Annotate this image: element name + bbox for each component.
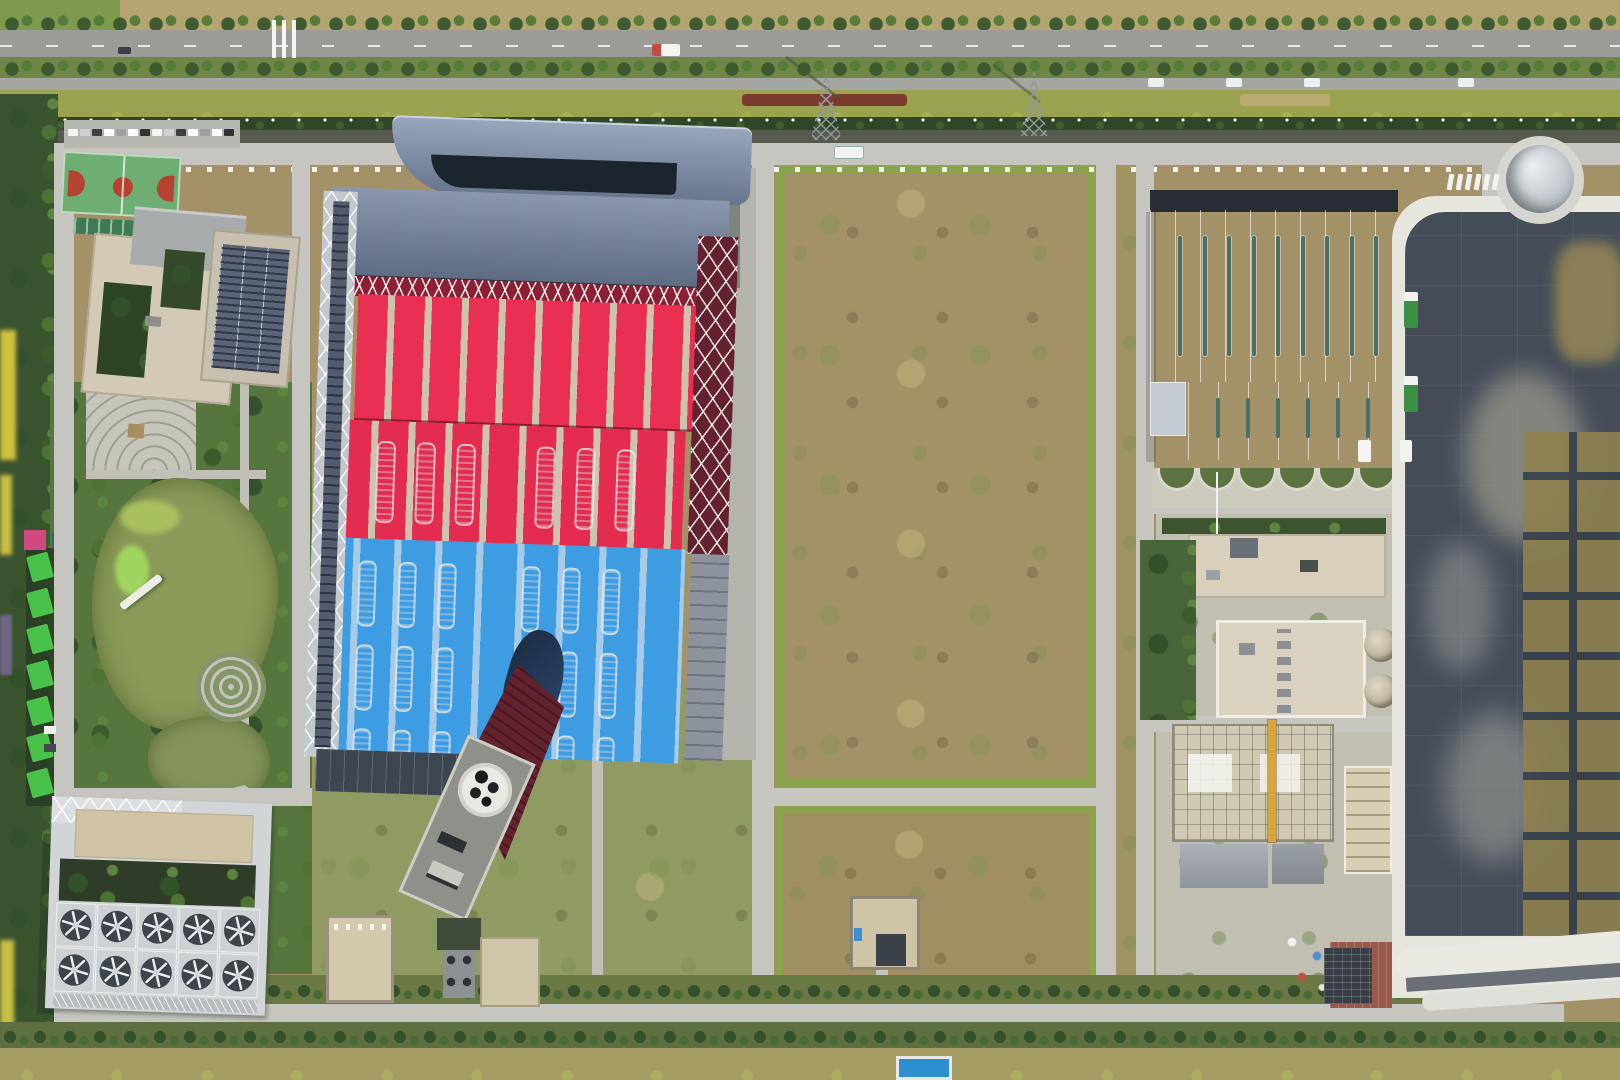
- cooling-fan-cell: [94, 949, 136, 994]
- cooling-fan-grid: [53, 902, 260, 999]
- parked-car-left-road-1: [44, 726, 56, 734]
- frame-white-panel-2: [1260, 754, 1300, 792]
- roof-unit-small-2: [1206, 570, 1220, 580]
- annex-skylights: [1216, 396, 1366, 442]
- pump-house-roof-dots: [334, 924, 386, 930]
- truck-on-internal-road: [834, 146, 864, 159]
- blue-roof-vent: [434, 647, 454, 714]
- pink-kiosk: [24, 530, 46, 550]
- dry-grass-bottom: [0, 1048, 1620, 1080]
- perimeter-hedge: [0, 117, 1620, 131]
- warehouse-skylight: [1374, 236, 1378, 356]
- planter-arch: [1240, 468, 1274, 488]
- parked-van: [1304, 78, 1320, 87]
- roof-unit-dark: [1230, 538, 1258, 558]
- blue-roof-vent: [561, 567, 581, 634]
- parked-car: [68, 129, 78, 136]
- cooling-tower-bank: [45, 796, 272, 1016]
- yellow-flower-field-1: [0, 330, 16, 460]
- basin-dark-surface: [1405, 212, 1620, 936]
- green-shelter-panel: [26, 588, 54, 619]
- yellow-flower-field-2: [0, 475, 12, 555]
- fan-blades-icon: [55, 948, 94, 991]
- red-roof-vent: [374, 441, 396, 524]
- gray-shed-roof-1: [1180, 844, 1268, 888]
- fan-blades-icon: [56, 903, 95, 946]
- office-solar-array: [211, 244, 290, 373]
- dark-solar-building: [1324, 948, 1372, 1004]
- road-cross-field: [752, 788, 1116, 806]
- planter-arches-row: [1152, 468, 1398, 508]
- warehouse-skylight: [1325, 236, 1329, 356]
- fan-blades-icon: [218, 954, 257, 997]
- office-roof-unit: [145, 316, 162, 327]
- warehouse-north-edge: [1150, 190, 1398, 212]
- stack-roof-equipment-2: [427, 860, 464, 887]
- aerial-photo: [0, 0, 1620, 1080]
- truck-on-highway: [652, 44, 680, 56]
- cooling-inner-vegetation: [59, 859, 256, 908]
- parked-car: [224, 129, 234, 136]
- plaza-pavilion: [127, 423, 144, 438]
- process-building-north: [1188, 534, 1386, 598]
- field-utility-blue-bin: [854, 928, 862, 941]
- highway-lane-dashes: [0, 45, 1620, 47]
- tower-crane: [1268, 720, 1276, 842]
- glass-roof-upper: [329, 187, 730, 291]
- fan-blades-icon: [179, 908, 218, 951]
- field-utility-roof-unit: [876, 934, 906, 966]
- park-shelter-row: [26, 548, 56, 806]
- parked-car-left-road-2: [44, 744, 56, 752]
- annex-skylight: [1306, 398, 1310, 438]
- south-tree-row-upper: [54, 975, 1474, 1007]
- office-building: [80, 203, 306, 416]
- tank-crosswalk: [1448, 172, 1508, 194]
- red-roof-lower: [338, 420, 686, 550]
- blue-roof-vent: [595, 737, 615, 764]
- crosswalk-bar: [1465, 174, 1473, 191]
- parked-car: [164, 129, 174, 136]
- cooling-beige-deck: [74, 809, 254, 863]
- court-key-right: [156, 175, 174, 202]
- substation-fan-unit: [443, 950, 475, 998]
- zebra-crossing-top-left: [272, 20, 302, 58]
- annex-skylight: [1336, 398, 1340, 438]
- red-roof-vent: [534, 446, 556, 529]
- workshop-beige-roof: [480, 937, 540, 1007]
- annex-skylight: [1366, 398, 1370, 438]
- court-key-left: [67, 170, 85, 197]
- fence-posts-row: [60, 167, 1560, 172]
- tall-dormitory: [1344, 766, 1392, 874]
- warehouse-skylight: [1276, 236, 1280, 356]
- warehouse-annex-left: [1150, 382, 1186, 436]
- green-truck: [1404, 376, 1418, 412]
- parked-van: [1458, 78, 1474, 87]
- red-roof-vent: [574, 448, 596, 531]
- parked-car: [80, 129, 90, 136]
- office-courtyard-west: [96, 282, 152, 378]
- roof-hatch-row: [1277, 629, 1291, 713]
- cooling-fan-cell: [135, 950, 177, 995]
- blue-roof-vent: [437, 563, 457, 630]
- annex-skylight: [1246, 398, 1250, 438]
- warehouse-skylight: [1203, 236, 1207, 356]
- road-field-east: [1096, 150, 1116, 1028]
- blue-roof-vent: [521, 566, 541, 633]
- white-van-warehouse: [1358, 440, 1371, 462]
- blue-roof-vent: [397, 562, 417, 629]
- cooling-fan-cell: [96, 904, 138, 949]
- purple-plot: [0, 615, 12, 675]
- parking-row-top: [64, 120, 240, 148]
- verge-tan-patch: [1240, 94, 1330, 106]
- parked-car: [140, 129, 150, 136]
- crosswalk-bar: [1474, 174, 1482, 191]
- cooling-fan-cell: [53, 947, 95, 992]
- red-roof-upper: [354, 294, 710, 432]
- parked-car: [104, 129, 114, 136]
- basin-brown-patch-top: [1555, 242, 1620, 362]
- planter-arch: [1280, 468, 1314, 488]
- fan-blades-icon: [177, 953, 216, 996]
- white-car-basin-road: [1400, 440, 1412, 462]
- parked-van: [1148, 78, 1164, 87]
- red-roof-vent: [614, 449, 636, 532]
- pond-algae-patch-1: [120, 500, 180, 534]
- stack-roof-equipment: [437, 831, 467, 853]
- fan-blades-icon: [95, 950, 134, 993]
- planter-arch: [1360, 468, 1394, 488]
- parked-car: [212, 129, 222, 136]
- warehouse-skylights: [1178, 226, 1374, 366]
- shrub-row-north: [1162, 518, 1386, 534]
- fan-blades-icon: [97, 905, 136, 948]
- blue-roof-vent: [555, 735, 575, 763]
- dirt-strip-east-of-field: [1116, 163, 1138, 1008]
- basin-silt-patch-2: [1425, 542, 1495, 672]
- green-shelter-panel: [26, 552, 54, 583]
- green-shelter-panel: [26, 624, 54, 655]
- frame-white-panel-1: [1188, 754, 1232, 792]
- cooling-fan-cell: [219, 908, 261, 953]
- gas-holder-tank: [1506, 145, 1574, 213]
- lined-basin: [1392, 196, 1620, 998]
- warehouse-skylight: [1350, 236, 1354, 356]
- boundary-wall-shadow: [0, 130, 1620, 143]
- construction-frame-plant: [1172, 724, 1334, 842]
- crosswalk-bar: [1492, 174, 1500, 191]
- parked-car: [188, 129, 198, 136]
- blue-pool: [896, 1056, 952, 1080]
- fan-blades-icon: [220, 909, 259, 952]
- dirt-field-north: [775, 163, 1097, 788]
- roof-vent-box: [1239, 643, 1255, 655]
- warehouse-skylight: [1252, 236, 1256, 356]
- blue-roof-vent: [601, 569, 621, 636]
- cooling-fan-cell: [217, 953, 259, 998]
- blue-roof-vent: [354, 644, 374, 711]
- gray-shed-roof-2: [1272, 844, 1324, 884]
- red-roof-vent: [414, 442, 436, 525]
- park-round-plaza: [196, 652, 266, 722]
- red-roof-vent: [454, 444, 476, 527]
- office-courtyard-north: [160, 249, 205, 310]
- stack-circle-pad: [449, 754, 520, 825]
- cooling-fan-cell: [137, 905, 179, 950]
- parked-van: [1226, 78, 1242, 87]
- parked-car: [92, 129, 102, 136]
- cooling-fan-cell: [178, 907, 220, 952]
- annex-skylight: [1276, 398, 1280, 438]
- parked-car: [128, 129, 138, 136]
- blue-roof-vent: [394, 646, 414, 713]
- planter-arch: [1320, 468, 1354, 488]
- green-shelter-panel: [26, 660, 54, 691]
- planter-arch: [1160, 468, 1194, 488]
- parked-car: [116, 129, 126, 136]
- warehouse-skylight: [1227, 236, 1231, 356]
- fan-blades-icon: [138, 906, 177, 949]
- roof-unit-small-1: [1300, 560, 1318, 572]
- process-building-south: [1216, 620, 1366, 718]
- parked-car: [176, 129, 186, 136]
- shrub-patch-west: [1140, 540, 1196, 720]
- cooling-fan-cell: [55, 902, 97, 947]
- crosswalk-bar: [1483, 174, 1491, 191]
- crosswalk-bar: [1447, 174, 1455, 191]
- car-on-highway: [118, 47, 131, 54]
- green-shelter-panel: [26, 696, 54, 727]
- warehouse-skylight: [1178, 236, 1182, 356]
- parked-car: [200, 129, 210, 136]
- yellow-flower-field-3: [0, 940, 14, 1030]
- green-truck: [1404, 292, 1418, 328]
- blue-roof-vent: [598, 653, 618, 720]
- flag-mast: [1216, 472, 1218, 534]
- substation-dark-roof: [437, 918, 481, 950]
- annex-skylight: [1216, 398, 1220, 438]
- green-shelter-panel: [26, 768, 54, 799]
- east-gray-wall: [684, 554, 729, 761]
- parked-car: [152, 129, 162, 136]
- cooling-fan-cell: [176, 952, 218, 997]
- fan-blades-icon: [136, 951, 175, 994]
- basin-drying-cells: [1523, 432, 1620, 936]
- crosswalk-bar: [1456, 174, 1464, 191]
- warehouse-skylight: [1301, 236, 1305, 356]
- blue-roof-vent: [357, 560, 377, 627]
